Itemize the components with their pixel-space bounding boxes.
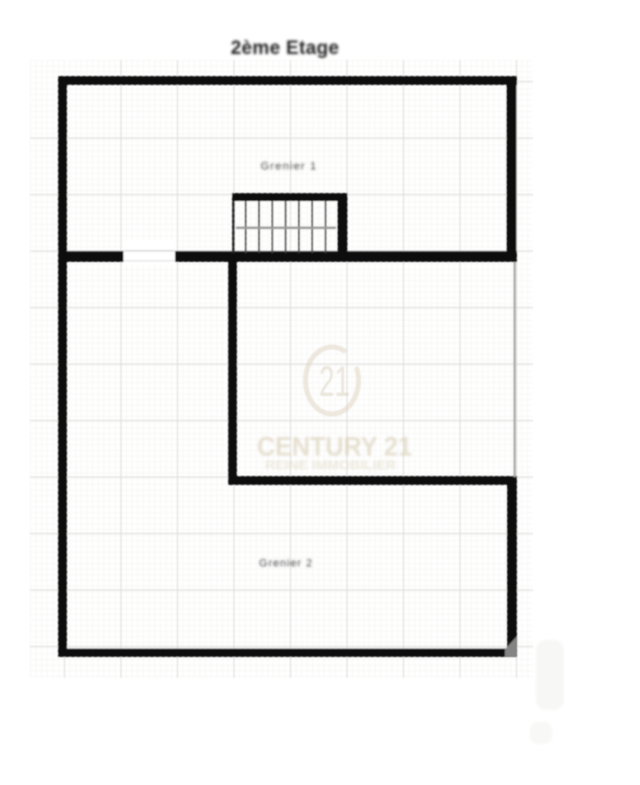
svg-text:REINE IMMOBILIER: REINE IMMOBILIER xyxy=(265,458,397,473)
svg-text:Grenier 2: Grenier 2 xyxy=(259,558,313,570)
svg-text:2ème Etage: 2ème Etage xyxy=(231,38,340,59)
svg-text:Grenier 1: Grenier 1 xyxy=(261,161,318,173)
svg-text:21: 21 xyxy=(319,357,350,406)
